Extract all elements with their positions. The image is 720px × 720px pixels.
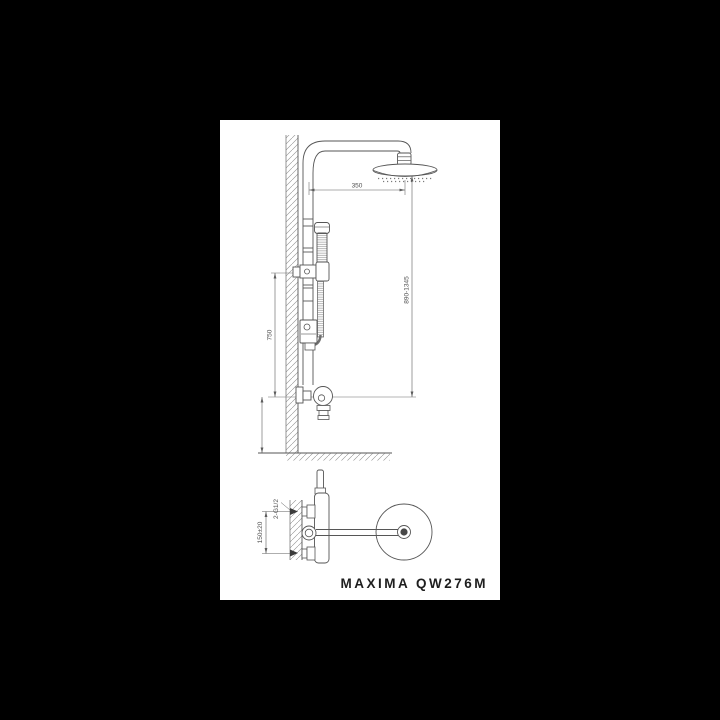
dim-inlet-spacing-label: 150±20 — [257, 521, 264, 543]
dimension-mixer-height — [261, 397, 264, 453]
hand-shower — [315, 223, 330, 265]
dim-350-label: 350 — [352, 183, 363, 190]
plan-mixer-body — [315, 493, 330, 563]
plan-outlet-inner — [305, 529, 313, 537]
dim-750-label: 750 — [267, 329, 274, 340]
plan-inlet-top — [302, 505, 315, 518]
dimension-slidebar: 750 — [267, 273, 277, 397]
inlet-thread-label: 2-G1/2 — [273, 499, 280, 519]
technical-drawing: 350 890-1345 750 — [220, 120, 500, 600]
plan-inlet-bottom — [302, 547, 315, 560]
plan-arm-joint — [400, 528, 407, 535]
dimension-column-height: 890-1345 — [404, 176, 414, 397]
head-connector — [398, 153, 412, 165]
rain-shower-head — [373, 164, 437, 182]
floor-line — [258, 453, 392, 461]
diverter-box — [300, 320, 317, 350]
drawing-sheet: 350 890-1345 750 — [220, 120, 500, 600]
plan-mixer-handle — [315, 470, 326, 494]
mixer-valve — [296, 387, 333, 420]
dim-column-height-label: 890-1345 — [404, 276, 411, 304]
wall-section — [286, 135, 298, 453]
product-model-label: MAXIMA QW276M — [340, 576, 488, 591]
plan-view: 150±20 2-G1/2 — [257, 470, 432, 563]
dimension-head-offset: 350 — [309, 183, 405, 192]
inlet-leader — [281, 503, 290, 511]
